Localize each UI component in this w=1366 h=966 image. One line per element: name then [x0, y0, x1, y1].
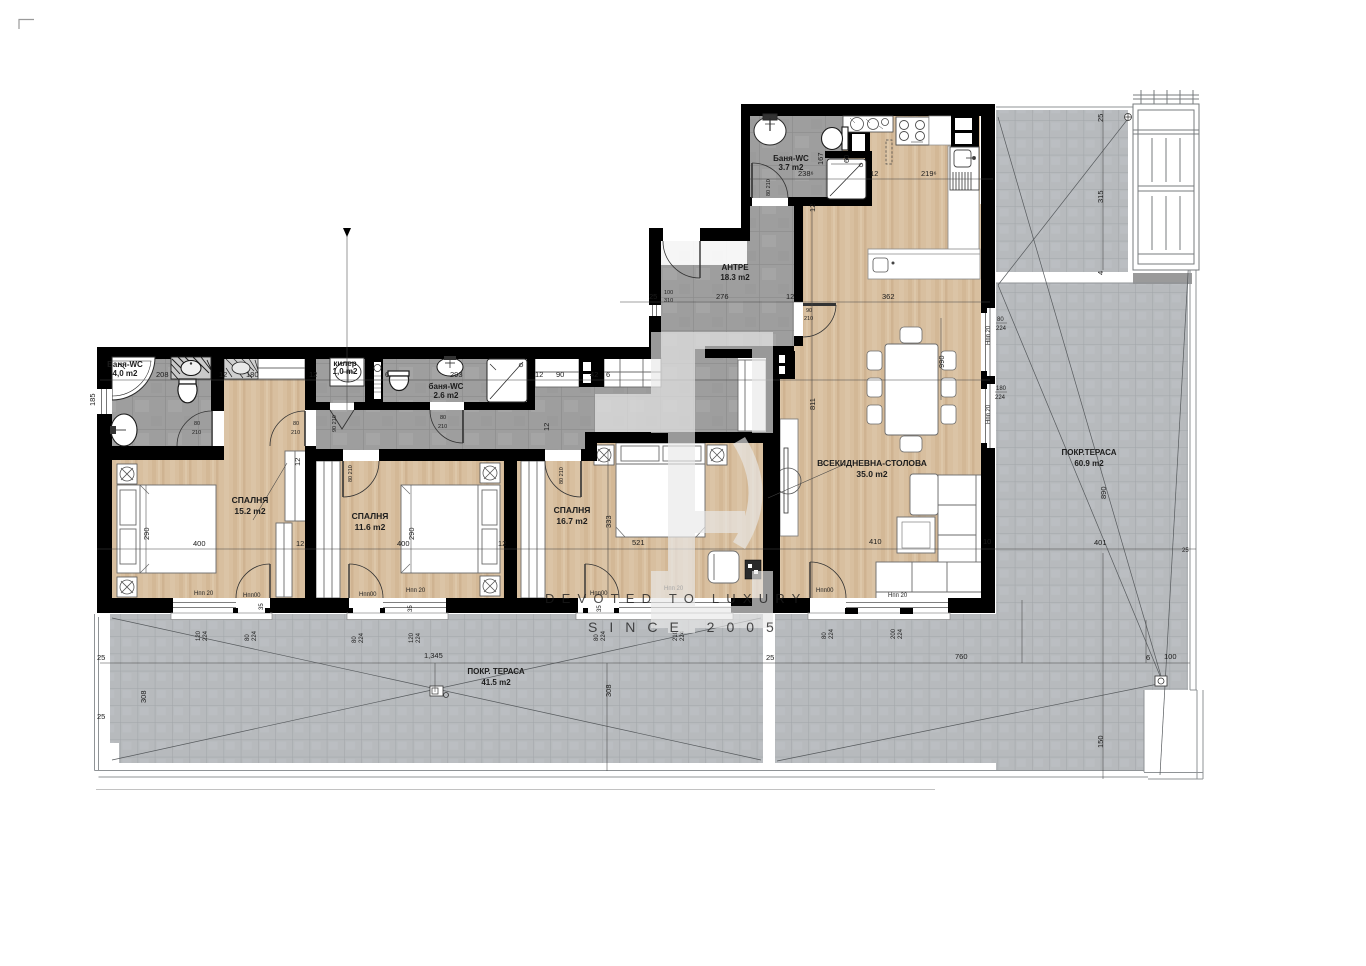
svg-text:11.6 m2: 11.6 m2 [355, 522, 386, 532]
svg-text:СПАЛНЯ: СПАЛНЯ [554, 505, 591, 515]
svg-text:224: 224 [416, 632, 422, 643]
svg-text:12: 12 [293, 458, 302, 466]
svg-text:224: 224 [996, 326, 1007, 332]
svg-text:Hпп00: Hпп00 [359, 592, 377, 598]
svg-text:150: 150 [1096, 735, 1105, 748]
svg-text:42: 42 [590, 370, 598, 379]
svg-text:308: 308 [604, 684, 613, 697]
svg-text:баня-WC: баня-WC [429, 382, 464, 391]
svg-text:3.7 m2: 3.7 m2 [779, 163, 804, 172]
svg-text:СПАЛНЯ: СПАЛНЯ [352, 511, 389, 521]
svg-text:224: 224 [829, 628, 835, 639]
svg-text:80: 80 [997, 317, 1004, 323]
svg-text:210: 210 [192, 430, 201, 436]
svg-text:208: 208 [156, 370, 169, 379]
svg-text:25: 25 [649, 292, 657, 301]
svg-text:16.7 m2: 16.7 m2 [556, 516, 587, 526]
svg-text:224: 224 [359, 632, 365, 643]
svg-text:224: 224 [203, 630, 209, 641]
svg-text:25: 25 [97, 712, 105, 721]
svg-text:12: 12 [309, 370, 317, 379]
svg-text:Hпп 20: Hпп 20 [888, 593, 908, 599]
svg-text:Hпп 20: Hпп 20 [986, 325, 992, 345]
svg-text:400: 400 [193, 539, 206, 548]
svg-text:80: 80 [194, 421, 200, 427]
svg-text:120: 120 [409, 632, 415, 643]
svg-text:210: 210 [804, 316, 813, 322]
svg-text:60: 60 [842, 155, 851, 163]
svg-text:СПАЛНЯ: СПАЛНЯ [232, 495, 269, 505]
svg-text:760: 760 [955, 652, 968, 661]
svg-text:ПОКР. ТЕРАСА: ПОКР. ТЕРАСА [467, 667, 524, 676]
svg-text:80: 80 [822, 632, 828, 639]
svg-text:Hпп00: Hпп00 [816, 588, 834, 594]
svg-text:362: 362 [882, 292, 895, 301]
svg-text:12: 12 [542, 423, 551, 431]
svg-text:293: 293 [450, 370, 463, 379]
svg-text:811: 811 [808, 398, 817, 410]
svg-text:Hпп00: Hпп00 [243, 593, 261, 599]
svg-text:990: 990 [937, 355, 946, 368]
svg-text:4: 4 [1096, 271, 1105, 275]
svg-text:12: 12 [219, 370, 227, 379]
svg-text:ПОКР.ТЕРАСА: ПОКР.ТЕРАСА [1061, 448, 1116, 457]
svg-text:12: 12 [296, 539, 304, 548]
svg-text:DEVOTED TO LUXURY: DEVOTED TO LUXURY [545, 591, 808, 606]
svg-text:308: 308 [139, 690, 148, 703]
svg-text:80: 80 [293, 421, 299, 427]
svg-text:12: 12 [808, 204, 817, 212]
svg-text:60.9 m2: 60.9 m2 [1074, 459, 1104, 468]
svg-text:Баня-WC: Баня-WC [773, 154, 809, 163]
svg-text:12: 12 [535, 370, 543, 379]
svg-text:290: 290 [142, 527, 151, 540]
svg-text:315: 315 [1096, 190, 1105, 203]
svg-text:290: 290 [407, 527, 416, 540]
svg-text:4,0 m2: 4,0 m2 [113, 369, 138, 378]
svg-text:6: 6 [606, 370, 610, 379]
svg-text:12: 12 [498, 539, 506, 548]
svg-text:185: 185 [88, 393, 97, 406]
svg-text:224: 224 [898, 628, 904, 639]
svg-text:210: 210 [291, 430, 300, 436]
svg-text:521: 521 [632, 538, 645, 547]
svg-text:80 210: 80 210 [559, 467, 565, 484]
svg-text:6: 6 [385, 370, 389, 379]
svg-text:12: 12 [870, 169, 878, 178]
svg-text:80 210: 80 210 [348, 465, 354, 482]
svg-text:18.3 m2: 18.3 m2 [720, 273, 750, 282]
svg-text:35.0 m2: 35.0 m2 [856, 469, 887, 479]
svg-text:41.5 m2: 41.5 m2 [481, 678, 511, 687]
svg-text:Hпп 20: Hпп 20 [406, 588, 426, 594]
svg-text:АНТРЕ: АНТРЕ [721, 263, 749, 272]
svg-text:12: 12 [786, 292, 794, 301]
svg-text:Hпп 20: Hпп 20 [194, 591, 214, 597]
svg-text:310: 310 [664, 298, 673, 304]
svg-text:35: 35 [408, 605, 414, 612]
svg-text:15.2 m2: 15.2 m2 [234, 506, 265, 516]
svg-text:180: 180 [246, 370, 259, 379]
svg-text:25: 25 [97, 653, 105, 662]
svg-text:890: 890 [1099, 486, 1108, 499]
svg-text:401: 401 [1094, 538, 1107, 547]
svg-text:ВСЕКИДНЕВНА-СТОЛОВА: ВСЕКИДНЕВНА-СТОЛОВА [817, 458, 927, 468]
svg-text:167: 167 [816, 152, 825, 165]
svg-text:80 210: 80 210 [766, 179, 772, 196]
svg-text:276: 276 [716, 292, 729, 301]
svg-text:90: 90 [806, 308, 812, 314]
svg-text:25: 25 [766, 653, 774, 662]
svg-text:90 210: 90 210 [332, 415, 338, 432]
svg-text:35: 35 [259, 603, 265, 610]
svg-text:80: 80 [352, 636, 358, 643]
svg-text:100: 100 [664, 290, 673, 296]
svg-text:80: 80 [440, 415, 446, 421]
svg-text:224: 224 [995, 395, 1006, 401]
svg-text:224: 224 [252, 630, 258, 641]
svg-text:1,345: 1,345 [424, 651, 443, 660]
svg-text:25: 25 [1096, 114, 1105, 122]
svg-text:10: 10 [983, 537, 991, 546]
svg-text:80: 80 [245, 634, 251, 641]
svg-text:210: 210 [438, 424, 447, 430]
svg-text:90: 90 [556, 370, 564, 379]
svg-text:410: 410 [869, 537, 882, 546]
svg-text:SINCE 2005: SINCE 2005 [588, 619, 786, 635]
svg-text:100: 100 [1164, 652, 1177, 661]
svg-text:120: 120 [196, 630, 202, 641]
svg-text:Hпп 20: Hпп 20 [986, 404, 992, 424]
svg-text:219⁶: 219⁶ [921, 169, 937, 178]
svg-text:333: 333 [604, 515, 613, 528]
svg-text:2.6 m2: 2.6 m2 [434, 391, 459, 400]
svg-text:1,0 m2: 1,0 m2 [333, 367, 358, 376]
svg-text:180: 180 [996, 386, 1007, 392]
svg-text:200: 200 [891, 628, 897, 639]
svg-text:6: 6 [1146, 653, 1150, 662]
svg-text:Баня-WC: Баня-WC [107, 360, 143, 369]
svg-text:25: 25 [1182, 548, 1189, 554]
